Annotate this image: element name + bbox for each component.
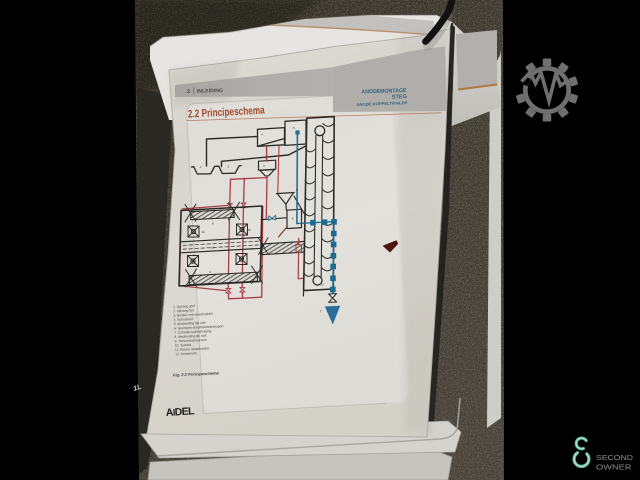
svg-text:7: 7: [320, 310, 322, 314]
svg-text:OWNER: OWNER: [596, 462, 632, 471]
svg-text:10: 10: [202, 230, 206, 234]
svg-text:SECOND: SECOND: [596, 453, 634, 462]
svg-text:15: 15: [248, 228, 252, 232]
svg-text:2: 2: [187, 89, 190, 95]
svg-text:12: 12: [321, 283, 325, 287]
svg-text:AlDEL: AlDEL: [165, 405, 195, 419]
svg-text:11: 11: [211, 246, 214, 250]
svg-text:INLEIDING: INLEIDING: [197, 88, 223, 95]
